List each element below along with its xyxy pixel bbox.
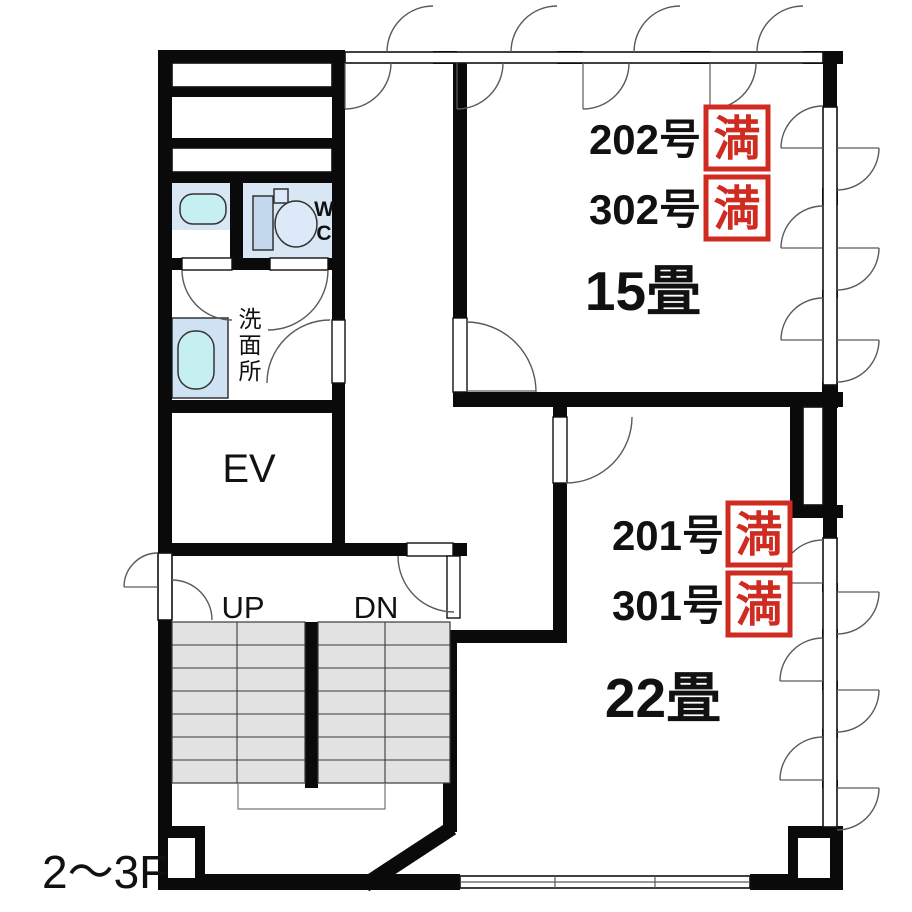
wall	[158, 172, 345, 183]
washroom-label-char: 洗	[239, 306, 262, 332]
window-swing-icon	[781, 106, 823, 148]
wall	[158, 87, 345, 97]
floor-plan: 202号 満 302号 満 15畳 201号 満 301号 満 22畳 EV U…	[0, 0, 912, 912]
window-swing-icon	[124, 553, 158, 587]
window-swing-icon	[583, 63, 629, 109]
vacancy-badge-text: 満	[736, 508, 783, 561]
window-band-right-lower	[823, 538, 837, 827]
wall	[158, 50, 172, 553]
wall	[453, 63, 467, 318]
wall	[158, 50, 345, 63]
window-swing-icon	[837, 690, 879, 732]
washroom-label-char: 面	[239, 332, 262, 358]
pillar-niche-right-inner	[798, 838, 830, 878]
room-size-label: 15畳	[585, 260, 701, 322]
toilet-tank-icon	[253, 196, 273, 250]
wall	[230, 183, 243, 258]
closet-slot	[172, 63, 332, 87]
window-swing-icon	[780, 737, 823, 780]
vacancy-badge-text: 満	[714, 112, 761, 165]
stair-flight-up	[172, 622, 305, 783]
bathtub-icon	[180, 194, 226, 224]
window-swing-icon	[781, 206, 823, 248]
window-swing-icon	[345, 63, 391, 109]
wc-label-c: C	[316, 222, 331, 245]
laundry-tub-icon	[178, 331, 214, 389]
door-opening	[182, 258, 232, 270]
wc-label-w: W	[314, 198, 334, 221]
wall	[158, 543, 407, 556]
window-swing-icon	[757, 6, 803, 52]
wall	[823, 407, 837, 538]
wall	[553, 407, 567, 417]
door-swing-icon	[566, 417, 632, 483]
pillar-niche-left-inner	[168, 838, 195, 878]
window-swing-icon	[780, 638, 823, 681]
window-swing-icon	[634, 6, 680, 52]
room-unit-label: 201号	[612, 512, 724, 559]
door-opening	[407, 543, 453, 556]
window-swing-icon	[710, 63, 756, 109]
wall	[553, 483, 567, 643]
wall	[158, 138, 345, 148]
window-swing-icon	[837, 248, 879, 290]
door-leaf	[447, 556, 460, 618]
wall	[453, 392, 843, 407]
window-band-left	[158, 553, 172, 620]
closet-slot	[172, 148, 332, 172]
vacancy-badge-text: 満	[714, 182, 761, 235]
door-swing-icon	[182, 270, 232, 320]
wall	[823, 52, 837, 108]
window-swing-icon	[837, 340, 879, 382]
ps-slot	[803, 407, 823, 505]
wall	[443, 630, 567, 643]
window-swing-icon	[172, 580, 212, 620]
door-opening	[270, 258, 328, 270]
window-band-right-upper	[823, 107, 837, 385]
stairs-up-label: UP	[221, 590, 264, 625]
toilet-cistern-icon	[274, 189, 288, 203]
stair-divider-wall	[305, 622, 318, 788]
wall	[822, 382, 838, 408]
window-swing-icon	[837, 148, 879, 190]
wall	[158, 258, 182, 270]
door-opening	[332, 320, 345, 383]
washroom-label-char: 所	[239, 358, 262, 384]
room-unit-label: 301号	[612, 582, 724, 629]
room-unit-label: 302号	[589, 186, 701, 233]
door-swing-icon	[398, 556, 454, 612]
elevator-label: EV	[222, 447, 276, 491]
wall	[232, 258, 270, 270]
toilet-bowl-icon	[275, 201, 317, 247]
door-swing-icon	[466, 322, 536, 392]
room-size-label: 22畳	[605, 667, 721, 729]
wall	[332, 50, 345, 320]
window-swing-icon	[837, 592, 879, 634]
window-swing-icon	[511, 6, 557, 52]
wall	[453, 543, 467, 556]
stairs-down-label: DN	[354, 590, 399, 625]
floor-label: 2～3F	[42, 846, 167, 898]
window-swing-icon	[837, 788, 879, 830]
stair-flight-down	[318, 622, 450, 783]
door-opening	[553, 417, 567, 483]
window-swing-icon	[387, 6, 433, 52]
window-swing-icon	[781, 298, 823, 340]
room-unit-label: 202号	[589, 116, 701, 163]
door-opening	[453, 318, 467, 392]
window-band-top	[345, 52, 823, 63]
vacancy-badge-text: 満	[736, 578, 783, 631]
wall	[158, 400, 345, 413]
